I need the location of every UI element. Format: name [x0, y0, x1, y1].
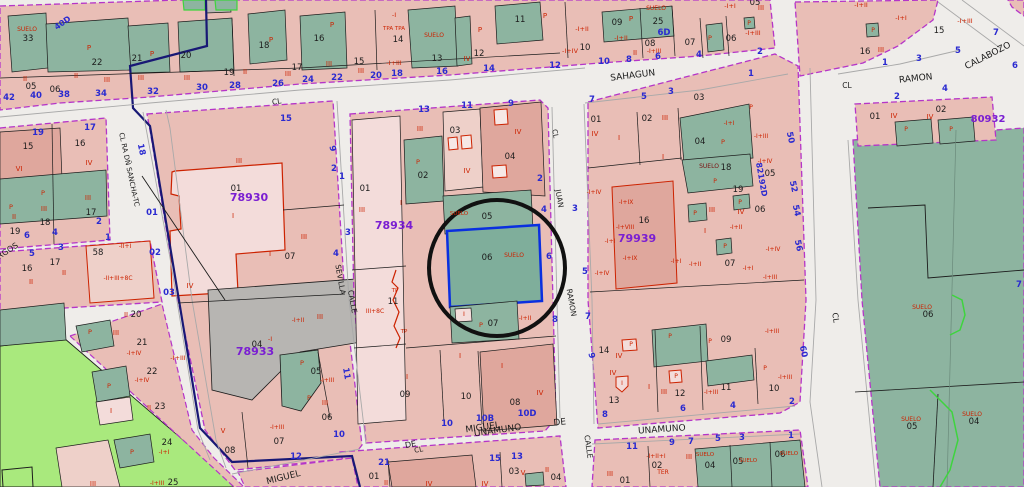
- construction-label: III: [662, 114, 668, 122]
- street-label-calle: CALLE: [582, 434, 594, 459]
- construction-label: P: [479, 321, 483, 329]
- construction-label: -I+IV: [758, 158, 774, 165]
- construction-label: -I+II: [689, 261, 702, 268]
- street-number: 7: [589, 95, 595, 105]
- construction-label: P: [708, 34, 712, 42]
- construction-label: P: [107, 382, 111, 390]
- construction-label: III: [85, 194, 91, 202]
- parcel-ref-80932: 80932: [971, 114, 1006, 125]
- construction-label: VI: [16, 165, 23, 173]
- street-number: 3: [916, 54, 922, 64]
- street-number: 10D: [518, 409, 537, 419]
- construction-label: III: [41, 205, 47, 213]
- construction-label: -I+IX: [619, 199, 634, 206]
- construction-label: I: [232, 212, 234, 220]
- parcel[interactable]: [0, 303, 66, 346]
- construction-label: SUELO: [696, 452, 715, 458]
- street-number: 17: [84, 123, 96, 133]
- street-number: 4: [696, 50, 702, 60]
- construction-label: -I+II: [854, 1, 868, 9]
- construction-label: -I+III: [745, 29, 761, 37]
- construction-label: I: [648, 383, 650, 391]
- construction-label: II: [147, 404, 151, 412]
- parcel-number: 04: [969, 417, 980, 427]
- construction-label: I: [400, 199, 402, 207]
- construction-label: P: [668, 333, 672, 340]
- construction-label: III: [317, 313, 323, 321]
- street-number: 6: [655, 52, 661, 62]
- construction-label: P: [763, 365, 767, 372]
- street-label-ramon-2: RAMON: [565, 288, 579, 317]
- street-number: 12: [290, 452, 302, 462]
- parcel-number: 01: [591, 115, 602, 125]
- map-line: [810, 68, 822, 487]
- parcel[interactable]: [352, 116, 406, 424]
- parcel-number: 15: [354, 57, 365, 67]
- construction-label: II: [124, 311, 128, 319]
- parcel-number: 16: [860, 47, 871, 57]
- construction-label: II: [545, 466, 549, 474]
- construction-label: III: [878, 46, 884, 54]
- construction-label: I: [501, 362, 503, 370]
- street-number: 3: [572, 204, 578, 214]
- parcel-number: 06: [322, 413, 333, 423]
- construction-label: -I+IV: [587, 189, 603, 196]
- construction-label: I: [110, 407, 112, 415]
- parcel-number: 04: [551, 473, 562, 483]
- street-number: 42: [3, 93, 15, 103]
- construction-label: -I+III: [754, 133, 769, 140]
- building-footprint[interactable]: [448, 137, 458, 150]
- street-number: 22: [331, 73, 343, 83]
- construction-label: I: [704, 227, 706, 235]
- construction-label: P: [300, 359, 304, 367]
- street-number: 2: [789, 397, 795, 407]
- street-number: 3: [58, 243, 64, 253]
- construction-label: -I+II: [575, 25, 589, 33]
- street-number: 8: [602, 410, 608, 420]
- construction-label: III: [113, 329, 119, 337]
- street-number: 1: [105, 233, 111, 243]
- parcel-number: 07: [488, 319, 499, 329]
- parcel-number: 24: [162, 438, 173, 448]
- parcel-ref-78933: 78933: [236, 345, 274, 358]
- parcel[interactable]: [248, 10, 287, 64]
- street-number: 38: [58, 90, 70, 100]
- construction-label: III: [322, 399, 328, 407]
- construction-label: III+8C: [366, 308, 384, 315]
- construction-label: P: [871, 27, 875, 34]
- parcel[interactable]: [76, 320, 114, 352]
- street-number: 4: [942, 84, 948, 94]
- parcel-ref-79939: 79939: [618, 232, 656, 245]
- parcel-number: 03: [509, 467, 520, 477]
- street-number: 7: [585, 312, 591, 322]
- construction-label: II: [243, 68, 247, 76]
- construction-label: III: [417, 125, 423, 133]
- street-number: 14: [483, 64, 495, 74]
- parcel-number: 15: [23, 142, 34, 152]
- construction-label: IV: [515, 128, 522, 136]
- construction-label: IV: [592, 130, 599, 138]
- parcel[interactable]: [183, 0, 205, 10]
- construction-label: P: [307, 394, 311, 402]
- construction-label: III: [358, 67, 364, 75]
- street-number: 2: [331, 164, 337, 174]
- construction-label: P: [9, 203, 13, 211]
- construction-label: P: [543, 12, 547, 20]
- construction-label: -I+IV: [127, 350, 143, 357]
- parcel-number: 07: [274, 437, 285, 447]
- construction-label: P: [749, 104, 753, 111]
- parcel-number: 01: [369, 472, 380, 482]
- construction-label: -I+III: [765, 328, 780, 335]
- parcel-number: 02: [418, 171, 429, 181]
- construction-label: P: [904, 126, 908, 133]
- construction-label: -I+I: [159, 449, 170, 456]
- parcel-number: 13: [432, 54, 443, 64]
- street-number: 5: [29, 249, 35, 259]
- construction-label: III: [301, 233, 307, 241]
- parcel-number: 01: [360, 184, 371, 194]
- parcel-number: 22: [147, 367, 158, 377]
- street-number: 5: [582, 267, 588, 277]
- street-number: 11: [461, 101, 473, 111]
- construction-label: SUELO: [424, 32, 444, 39]
- construction-label: -I+I: [724, 2, 736, 10]
- construction-label: -I+I: [724, 120, 735, 127]
- parcel-number: 05: [765, 169, 776, 179]
- parcel-number: 01: [620, 476, 631, 486]
- construction-label: -I+IV: [562, 47, 579, 55]
- construction-label: P: [721, 138, 725, 146]
- parcel-number: 07: [725, 259, 736, 269]
- street-number: 2: [757, 47, 763, 57]
- construction-label: -I+I: [895, 14, 907, 22]
- construction-label: -I: [268, 335, 272, 343]
- construction-label: IV: [464, 167, 471, 175]
- selected-parcel-06[interactable]: [447, 225, 542, 307]
- construction-label: TER: [656, 469, 669, 476]
- street-label-calabozo: CALABOZO: [963, 40, 1012, 72]
- parcel-number: 06: [923, 310, 934, 320]
- construction-label: III: [104, 76, 110, 84]
- parcel-number: SUELO: [699, 163, 719, 170]
- building-footprint[interactable]: [494, 109, 508, 125]
- street-number: 2: [96, 217, 102, 227]
- construction-label: TPA TPA: [382, 26, 405, 32]
- parcel-number: 07: [685, 38, 696, 48]
- parcel-number: 11: [388, 297, 399, 307]
- building-footprint[interactable]: [492, 165, 507, 178]
- parcel-number: 19: [224, 68, 235, 78]
- street-number: 12: [549, 61, 561, 71]
- construction-label: III: [661, 388, 667, 396]
- street-number: 18: [135, 143, 147, 157]
- construction-label: III: [686, 453, 692, 461]
- street-number: 26: [272, 79, 284, 89]
- construction-label: -I+IV: [595, 270, 611, 277]
- street-number: 4: [730, 401, 736, 411]
- parcel-number: DE: [553, 417, 567, 428]
- street-number: 01: [146, 208, 158, 218]
- block-corner[interactable]: [1008, 0, 1024, 16]
- parcel-number: 19: [10, 227, 21, 237]
- construction-label: -I+III: [386, 59, 402, 67]
- construction-label: -I+II: [614, 34, 628, 42]
- street-number: 9: [508, 99, 514, 109]
- parcel-number: 06: [726, 34, 737, 44]
- street-number: 10: [333, 430, 345, 440]
- parcel-number: 14: [393, 35, 404, 45]
- construction-label: IV: [738, 208, 745, 216]
- parcel-number: 25: [168, 478, 179, 487]
- parcel-number: 07: [285, 252, 296, 262]
- street-number: 5: [955, 46, 961, 56]
- construction-label: III: [607, 470, 613, 478]
- parcel[interactable]: [96, 397, 133, 425]
- construction-label: III: [709, 206, 715, 214]
- building-footprint[interactable]: [461, 135, 472, 149]
- construction-label: P: [723, 243, 727, 250]
- construction-label: -I+III: [170, 354, 186, 362]
- street-number: 32: [147, 87, 159, 97]
- parcel-number: 10: [769, 384, 780, 394]
- parcel-number: 25: [653, 17, 664, 27]
- construction-label: -I+VIII: [616, 224, 635, 231]
- construction-label: IV: [616, 352, 623, 360]
- construction-label: IV: [927, 113, 934, 121]
- construction-label: II: [633, 49, 637, 57]
- street-number: 8: [626, 55, 632, 65]
- parcel-number: 09: [612, 18, 623, 28]
- construction-label: SUELO: [17, 26, 37, 33]
- street-number: 6: [680, 404, 686, 414]
- street-number: 6: [1012, 61, 1018, 71]
- block-green-right[interactable]: [853, 128, 1024, 487]
- construction-label: -I+II: [292, 317, 305, 324]
- street-number: 7: [688, 437, 694, 447]
- construction-label: V: [521, 469, 526, 477]
- construction-label: I: [463, 310, 465, 318]
- construction-label: III: [326, 60, 332, 68]
- parcel-number: 10: [461, 392, 472, 402]
- street-number: 13: [418, 105, 430, 115]
- construction-label: -I+IV: [766, 246, 782, 253]
- parcel-number: 04: [705, 461, 716, 471]
- street-number: 30: [196, 83, 208, 93]
- street-number: 21: [378, 458, 390, 468]
- parcel-number: 20: [181, 51, 192, 61]
- parcel-number: 13: [609, 396, 620, 406]
- parcel[interactable]: [404, 136, 444, 204]
- parcel[interactable]: [652, 324, 708, 367]
- construction-label: P: [416, 158, 420, 166]
- parcel-number: 03: [450, 126, 461, 136]
- street-number: 2: [537, 174, 543, 184]
- parcel-number: 17: [86, 208, 97, 218]
- construction-label: P: [629, 341, 633, 348]
- parcel-number: 19: [733, 185, 744, 195]
- construction-label: IV: [86, 159, 93, 167]
- parcel-number: 20: [131, 310, 142, 320]
- parcel-number: 12: [675, 389, 686, 399]
- parcel-number: 14: [599, 346, 610, 356]
- construction-label: I: [269, 250, 271, 258]
- street-number: 13: [511, 452, 523, 462]
- parcel-number: 08: [510, 398, 521, 408]
- parcel-number: 11: [515, 15, 526, 25]
- construction-label: -I: [392, 11, 396, 19]
- parcel-number: 22: [92, 58, 103, 68]
- street-number: 4: [541, 205, 547, 215]
- construction-label: V: [221, 427, 226, 435]
- parcel[interactable]: [688, 203, 707, 222]
- street-number: 10: [441, 419, 453, 429]
- parcel-number: 16: [75, 139, 86, 149]
- construction-label: -I+III: [763, 274, 778, 281]
- parcel-number: 21: [132, 54, 143, 64]
- parcel-number: 04: [695, 137, 706, 147]
- street-number: 02: [149, 248, 161, 258]
- street-number: 16: [436, 67, 448, 77]
- parcel-number: 23: [155, 402, 166, 412]
- street-number: 5: [641, 92, 647, 102]
- construction-label: P: [629, 15, 633, 23]
- parcel-number: 09: [721, 335, 732, 345]
- label-6d: 6D: [658, 28, 671, 38]
- parcel[interactable]: [114, 434, 154, 468]
- construction-label: P: [87, 44, 91, 52]
- construction-label: -I+III: [704, 389, 719, 396]
- parcel-number: 17: [50, 258, 61, 268]
- street-number: 6: [546, 252, 552, 262]
- construction-label: -I+I: [671, 258, 682, 265]
- parcel[interactable]: [92, 366, 130, 402]
- construction-label: P: [150, 50, 154, 58]
- parcel-number: 18: [259, 41, 270, 51]
- street-number: 4: [52, 228, 58, 238]
- parcel-number: 12: [474, 49, 485, 59]
- street-number: 7: [993, 28, 999, 38]
- selected-parcel-suelo: SUELO: [504, 252, 524, 259]
- construction-label: -I+IX: [623, 255, 638, 262]
- street-number: 9: [669, 438, 675, 448]
- street-number: 19: [32, 128, 44, 138]
- parcel[interactable]: [215, 0, 237, 10]
- street-number: 10: [598, 57, 610, 67]
- construction-label: IV: [426, 480, 433, 487]
- construction-label: I: [459, 352, 461, 360]
- parcel-number: 11: [721, 383, 732, 393]
- street-number: 03: [163, 288, 175, 298]
- construction-label: P: [674, 373, 678, 380]
- construction-label: P: [713, 178, 717, 185]
- street-label-ramon: RAMON: [899, 72, 934, 85]
- parcel-number: 08: [225, 446, 236, 456]
- construction-label: P: [41, 189, 45, 197]
- street-label-sancha: CL RA DÑ SANCHA-TC: [117, 132, 142, 208]
- construction-label: P: [130, 448, 134, 456]
- street-number: 1: [339, 172, 345, 182]
- parcel[interactable]: [2, 467, 33, 487]
- construction-label: P: [269, 36, 273, 44]
- parcel[interactable]: [525, 472, 544, 486]
- street-label-cl-right: CL: [830, 312, 840, 324]
- construction-label: IV: [537, 389, 544, 397]
- construction-label: -II+III+8C: [103, 275, 132, 282]
- parcel-number: 17: [292, 63, 303, 73]
- street-label-unamuno: UNAMUNO: [638, 423, 686, 436]
- parcel-number: CL: [550, 129, 559, 139]
- street-number: 40: [30, 91, 42, 101]
- parcel-number: 02: [936, 105, 947, 115]
- construction-label: III: [90, 480, 96, 487]
- construction-label: I: [618, 134, 620, 142]
- construction-label: -I+III: [957, 17, 973, 25]
- parcel-number: 01: [870, 112, 881, 122]
- construction-label: IV: [482, 480, 489, 487]
- construction-label: III: [285, 70, 291, 78]
- street-number: 5: [715, 434, 721, 444]
- parcel[interactable]: [938, 117, 975, 144]
- construction-label: P: [708, 338, 712, 345]
- construction-label: I: [621, 380, 623, 387]
- construction-label: P: [747, 20, 751, 27]
- street-number: 1: [748, 69, 754, 79]
- parcel-ref-78930: 78930: [230, 191, 269, 204]
- parcel-number: CL: [414, 445, 424, 454]
- parcel[interactable]: [895, 119, 933, 146]
- construction-label: II: [62, 269, 66, 277]
- construction-label: II: [29, 278, 33, 286]
- parcel-ref-78934: 78934: [375, 219, 414, 232]
- street-number: 7: [1016, 280, 1022, 290]
- construction-label: III: [184, 74, 190, 82]
- parcel-number: 02: [642, 114, 653, 124]
- construction-label: I: [406, 373, 408, 381]
- construction-label: -I+II+I: [646, 453, 666, 460]
- parcel[interactable]: [480, 102, 545, 196]
- block-top-right[interactable]: [795, 0, 938, 76]
- street-label-sahagun: SAHAGUN: [610, 68, 656, 83]
- parcel-number: 10: [580, 43, 591, 53]
- construction-label: I: [662, 153, 664, 161]
- parcel-number: 58: [93, 248, 104, 258]
- construction-label: III: [758, 4, 764, 12]
- map-canvas[interactable]: SUELO33P22P212019II18P17IIIII0506IIIIIII…: [0, 0, 1024, 487]
- parcel-number: 21: [137, 338, 148, 348]
- cadastral-map: SUELO33P22P212019II18P17IIIII0506IIIIIII…: [0, 0, 1024, 487]
- construction-label: -I+III: [150, 480, 165, 487]
- construction-label: P: [693, 210, 697, 217]
- street-number: 1: [788, 431, 794, 441]
- street-number: 28: [229, 81, 241, 91]
- construction-label: P: [738, 199, 742, 206]
- parcel-number: 06: [755, 205, 766, 215]
- parcel-number: 16: [22, 264, 33, 274]
- street-number: 11: [340, 367, 352, 380]
- construction-label: P: [88, 328, 92, 336]
- construction-label: P: [949, 126, 953, 133]
- street-number: 15: [489, 454, 501, 464]
- street-number: 3: [345, 228, 351, 238]
- construction-label: III: [359, 206, 365, 214]
- parcel-number: 16: [314, 34, 325, 44]
- construction-label: P: [478, 26, 482, 34]
- parcel-number: 16: [639, 216, 650, 226]
- construction-label: -I+I: [605, 238, 616, 245]
